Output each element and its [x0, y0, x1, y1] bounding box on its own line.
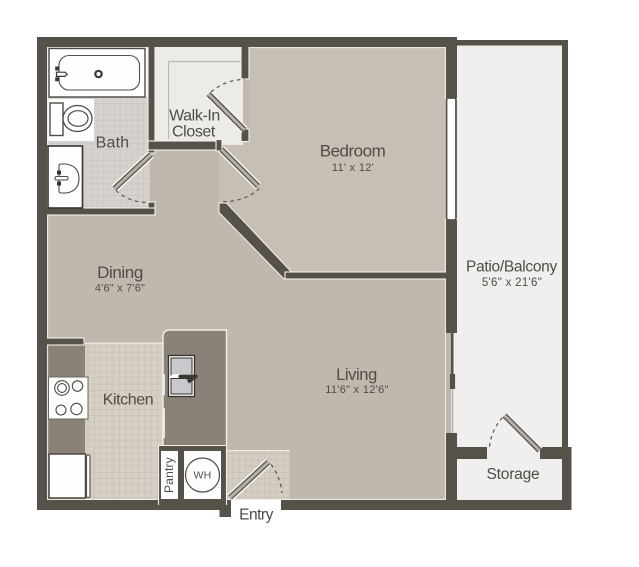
- svg-text:Patio/Balcony: Patio/Balcony: [466, 259, 557, 276]
- svg-text:5'6" x 21'6": 5'6" x 21'6": [482, 277, 542, 289]
- svg-text:WH: WH: [194, 470, 212, 482]
- svg-text:4'6" x 7'6": 4'6" x 7'6": [95, 283, 145, 295]
- svg-text:Bath: Bath: [96, 135, 130, 152]
- svg-text:Bedroom: Bedroom: [320, 142, 386, 161]
- svg-text:11' x 12': 11' x 12': [332, 162, 374, 174]
- svg-text:Living: Living: [336, 366, 377, 384]
- svg-text:Dining: Dining: [97, 263, 143, 282]
- svg-text:Pantry: Pantry: [162, 457, 176, 493]
- svg-text:Walk-In: Walk-In: [169, 108, 220, 125]
- svg-text:Storage: Storage: [487, 466, 540, 483]
- svg-text:Closet: Closet: [172, 124, 216, 141]
- svg-text:Entry: Entry: [239, 507, 273, 524]
- svg-text:Kitchen: Kitchen: [103, 392, 154, 409]
- svg-text:11'6" x 12'6": 11'6" x 12'6": [325, 384, 388, 396]
